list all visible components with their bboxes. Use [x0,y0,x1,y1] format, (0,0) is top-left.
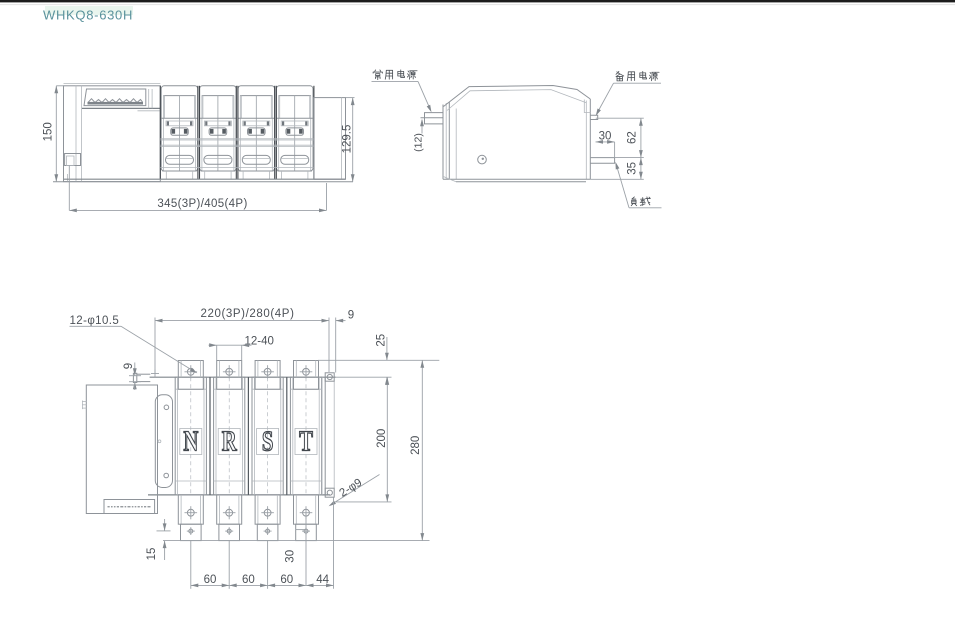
svg-text:15: 15 [146,548,158,561]
svg-text:(12): (12) [412,133,424,152]
svg-text:345(3P)/405(4P): 345(3P)/405(4P) [157,198,247,210]
svg-text:R: R [222,427,237,458]
svg-text:150: 150 [43,122,55,141]
svg-text:30: 30 [599,131,612,143]
svg-text:60: 60 [204,574,217,586]
svg-text:9: 9 [348,309,354,321]
svg-text:200: 200 [376,429,388,448]
svg-text:9: 9 [123,363,135,369]
svg-text:220(3P)/280(4P): 220(3P)/280(4P) [200,308,294,320]
svg-text:12-φ10.5: 12-φ10.5 [70,315,120,327]
svg-text:25: 25 [376,334,388,347]
svg-text:62: 62 [626,131,638,144]
svg-text:60: 60 [242,574,255,586]
svg-text:T: T [299,427,313,458]
svg-text:N: N [183,427,198,458]
svg-text:S: S [262,427,274,458]
svg-text:60: 60 [280,574,293,586]
svg-text:30: 30 [285,550,297,563]
svg-text:44: 44 [316,574,329,586]
svg-text:129.5: 129.5 [342,125,354,154]
svg-text:280: 280 [410,436,422,455]
svg-text:2-φ9: 2-φ9 [338,477,365,500]
svg-text:35: 35 [626,162,638,175]
svg-text:WHKQ8-630H: WHKQ8-630H [43,8,133,23]
